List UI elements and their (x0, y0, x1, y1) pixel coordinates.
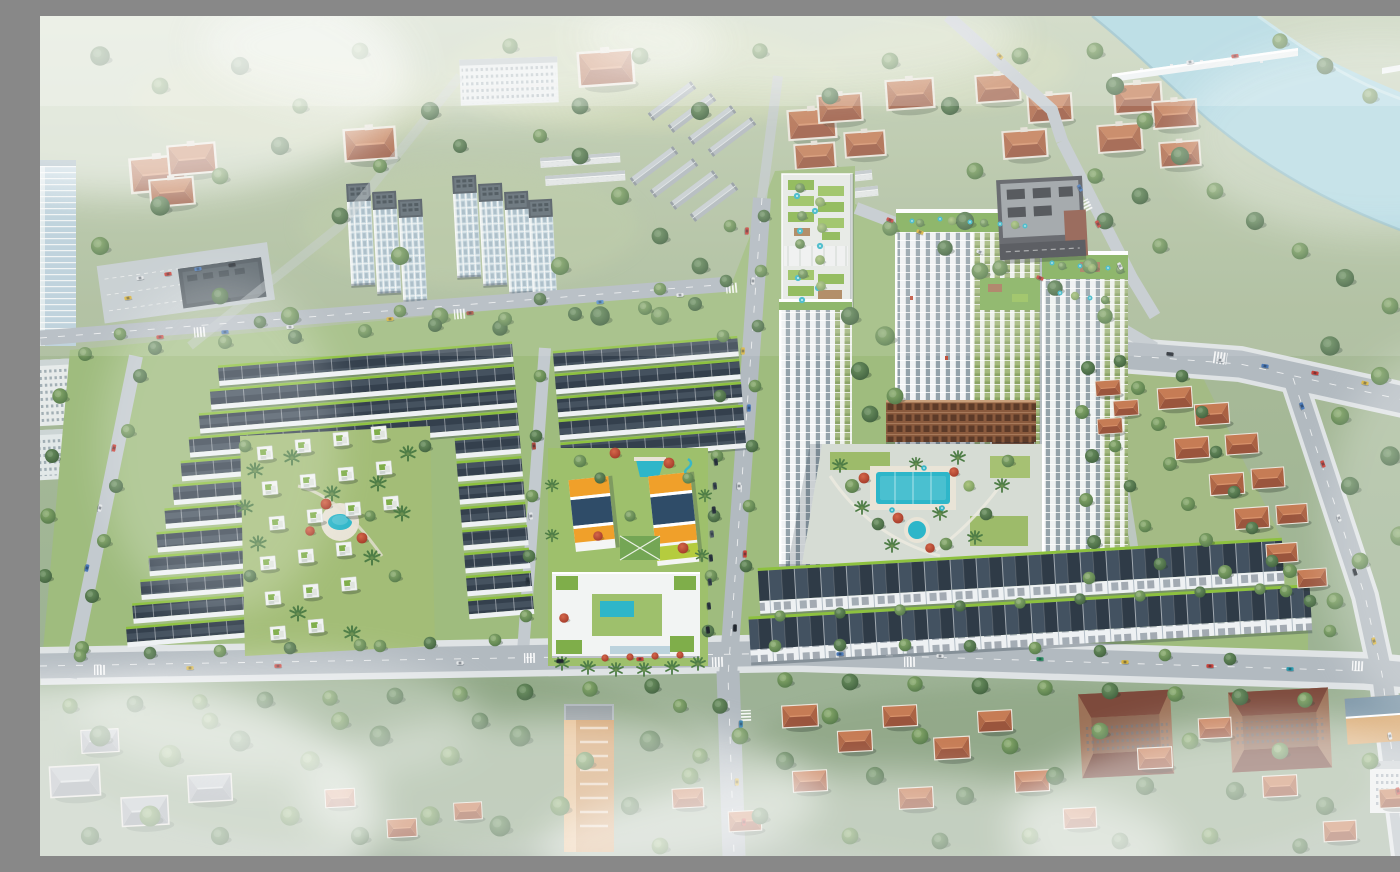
sports-court (620, 536, 660, 560)
car (531, 442, 536, 450)
scene-svg (40, 16, 1400, 856)
car (525, 577, 530, 585)
terracotta-house (1174, 436, 1214, 465)
tree-u (921, 465, 927, 471)
car (738, 720, 743, 728)
car (732, 624, 737, 632)
car (1206, 664, 1214, 669)
terracotta-house (1209, 472, 1249, 501)
terracotta-house (1296, 567, 1331, 592)
car (742, 550, 747, 558)
terracotta-house (1225, 432, 1263, 460)
terracotta-house (882, 704, 922, 732)
car (456, 661, 464, 666)
car (746, 404, 751, 412)
masterplan-aerial-rendering: Aerial 3D rendering of a mixed-use resid… (40, 16, 1400, 856)
terracotta-house (1113, 399, 1142, 420)
school-building-west (568, 476, 619, 552)
terracotta-house (977, 709, 1017, 737)
terracotta-house (1275, 503, 1312, 529)
car (936, 654, 944, 659)
car (1286, 667, 1294, 672)
terracotta-house (837, 729, 877, 757)
terracotta-house (933, 735, 975, 765)
terracotta-house (1097, 417, 1126, 438)
car (1036, 657, 1044, 662)
car (836, 652, 844, 657)
car (636, 657, 644, 662)
terracotta-house (1095, 379, 1124, 400)
clubhouse-u-building (552, 572, 700, 658)
tree-u (939, 505, 945, 511)
car (556, 659, 564, 664)
tree-u (889, 507, 895, 513)
terracotta-house (781, 703, 823, 733)
terracotta-house (1157, 386, 1197, 415)
terracotta-house (1251, 466, 1289, 494)
car (528, 512, 533, 520)
car (1121, 660, 1129, 665)
car (736, 482, 741, 490)
